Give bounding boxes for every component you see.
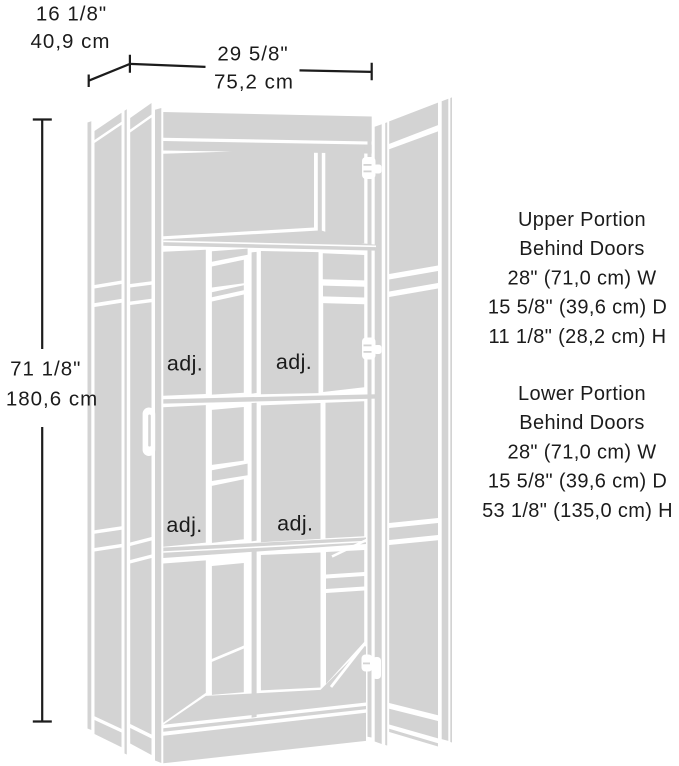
svg-text:53 1/8" (135,0 cm) H: 53 1/8" (135,0 cm) H [482, 500, 673, 522]
svg-text:29 5/8": 29 5/8" [217, 43, 288, 66]
svg-text:adj.: adj. [276, 350, 312, 374]
svg-text:71 1/8": 71 1/8" [10, 358, 81, 381]
svg-text:11 1/8" (28,2 cm) H: 11 1/8" (28,2 cm) H [489, 326, 667, 348]
svg-text:Upper Portion: Upper Portion [518, 209, 646, 231]
svg-text:75,2 cm: 75,2 cm [214, 71, 294, 94]
svg-text:15 5/8" (39,6 cm) D: 15 5/8" (39,6 cm) D [488, 297, 667, 319]
svg-text:adj.: adj. [166, 513, 202, 537]
svg-text:180,6 cm: 180,6 cm [6, 388, 98, 411]
svg-text:16 1/8": 16 1/8" [36, 3, 107, 26]
svg-text:adj.: adj. [277, 512, 313, 536]
svg-text:40,9 cm: 40,9 cm [31, 30, 111, 53]
svg-text:15 5/8" (39,6 cm) D: 15 5/8" (39,6 cm) D [488, 471, 667, 493]
svg-text:Behind Doors: Behind Doors [519, 238, 644, 260]
svg-text:adj.: adj. [167, 352, 203, 376]
svg-text:Behind Doors: Behind Doors [519, 412, 644, 434]
svg-text:Lower Portion: Lower Portion [518, 383, 646, 405]
svg-text:28" (71,0 cm) W: 28" (71,0 cm) W [507, 441, 656, 463]
svg-text:28" (71,0 cm) W: 28" (71,0 cm) W [507, 267, 656, 289]
